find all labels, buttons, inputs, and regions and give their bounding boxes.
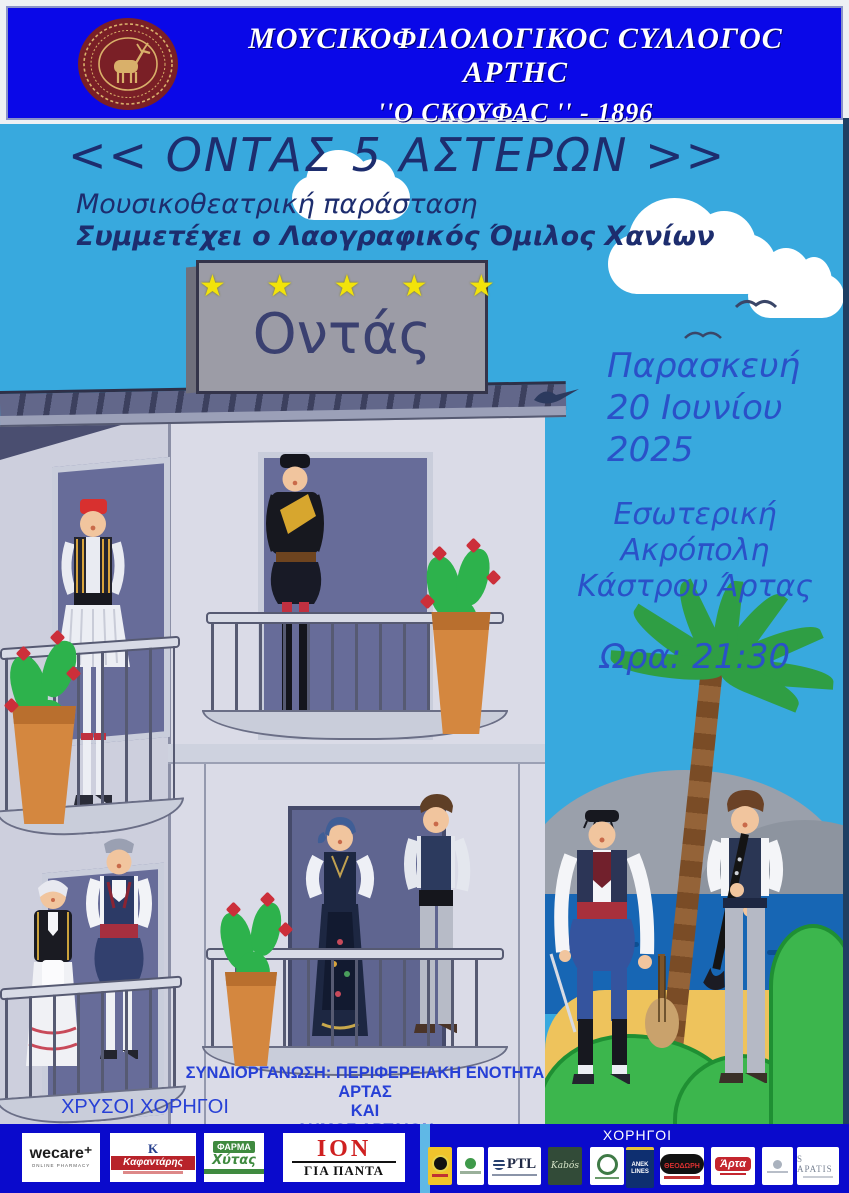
sponsor-microtext [664, 1176, 699, 1179]
sponsor-logo-5 [590, 1147, 624, 1185]
gold-sponsor-farma-xytas: ΦΑΡΜΑ Χύτας [204, 1133, 264, 1182]
sponsor-text: Καφαντάρης [111, 1156, 194, 1170]
event-venue-line1: Εσωτερική Ακρόπολη [545, 497, 845, 569]
sponsors-label: ΧΟΡΗΓΟΙ [430, 1127, 845, 1143]
sponsor-text: ΦΑΡΜΑ [213, 1141, 255, 1153]
event-day: Παρασκευή [607, 345, 845, 387]
sponsor-logo-2 [457, 1147, 484, 1185]
wreath-emblem-icon [597, 1154, 618, 1175]
sponsor-logo-arta: Άρτα [711, 1147, 755, 1185]
green-dot-icon [465, 1158, 476, 1169]
sponsor-microtext [720, 1173, 746, 1175]
event-details: Παρασκευή 20 Ιουνίου 2025 Εσωτερική Ακρό… [545, 345, 845, 677]
sponsor-logo-9 [762, 1147, 793, 1185]
musician-lyra-player [545, 804, 686, 1099]
sponsor-subtext: ΓΙΑ ΠΑΝΤΑ [304, 1164, 384, 1177]
sponsor-text: ΙΟΝ [317, 1138, 371, 1160]
seagull-icon [735, 296, 777, 310]
event-venue-line2: Κάστρου Άρτας [545, 569, 845, 605]
sponsor-logo-anek: ANEK LINES [626, 1147, 654, 1188]
sponsor-microtext [432, 1174, 449, 1177]
seagull-icon [684, 328, 722, 341]
sponsor-logo-kabos: Kabós [548, 1147, 582, 1185]
floor-ledge [168, 744, 545, 764]
sponsor-stripe [204, 1169, 264, 1174]
sponsor-text: PTL [507, 1157, 536, 1172]
sponsor-microtext [460, 1171, 480, 1174]
gold-sponsor-wecare: wecare⁺ ONLINE PHARMACY [22, 1133, 100, 1182]
sponsor-microtext [492, 1174, 537, 1176]
striped-globe-icon [493, 1158, 505, 1170]
show-participants: Συμμετέχει ο Λαογραφικός Όμιλος Χανίων [76, 221, 715, 252]
sponsor-text: ANEK LINES [626, 1162, 654, 1176]
sponsor-subtext: ONLINE PHARMACY [32, 1163, 91, 1169]
circle-emblem-icon [432, 1155, 449, 1172]
sponsor-microtext [123, 1171, 183, 1174]
gold-sponsors-label: ΧΡΥΣΟΙ ΧΟΡΗΓΟΙ [25, 1096, 265, 1119]
flower-emblem-icon [773, 1160, 782, 1169]
five-stars: ★ ★ ★ ★ ★ [199, 269, 485, 304]
sponsor-text: S APATIS [797, 1154, 839, 1174]
event-year: 2025 [607, 429, 845, 471]
club-founded: ''Ο CΚΟΥΦΑC '' - 1896 [198, 98, 833, 128]
sponsor-subtext: Χύτας [212, 1154, 256, 1168]
sponsor-microtext [803, 1176, 832, 1178]
event-poster: ΜΟΥCΙΚΟΦΙΛΟΛΟΓΙΚΟC CΥΛΛΟΓΟC ΑΡΤΗC ''Ο CΚ… [0, 0, 849, 1193]
header-text: ΜΟΥCΙΚΟΦΙΛΟΛΟΓΙΚΟC CΥΛΛΟΓΟC ΑΡΤΗC ''Ο CΚ… [198, 22, 833, 128]
club-seal-icon [76, 16, 180, 117]
right-edge-border [843, 118, 849, 1124]
sponsor-logo-1 [428, 1147, 452, 1185]
sponsor-text: ΘΕΟΔΩΡΗ [664, 1163, 700, 1170]
poster-header: ΜΟΥCΙΚΟΦΙΛΟΛΟΓΙΚΟC CΥΛΛΟΓΟC ΑΡΤΗC ''Ο CΚ… [6, 6, 843, 120]
sponsor-logo-ptl: PTL [488, 1147, 541, 1185]
hotel-name: Οντάς [199, 304, 485, 366]
sponsor-text: wecare⁺ [30, 1146, 93, 1162]
sponsor-logo-7: ΘΕΟΔΩΡΗ [660, 1147, 704, 1185]
sponsor-text: Kabós [551, 1161, 579, 1171]
club-name: ΜΟΥCΙΚΟΦΙΛΟΛΟΓΙΚΟC CΥΛΛΟΓΟC ΑΡΤΗC [198, 22, 833, 90]
sponsor-monogram: Κ [148, 1142, 158, 1155]
hotel-sign: ★ ★ ★ ★ ★ Οντάς [196, 260, 488, 394]
musician-clarinet-player [687, 788, 805, 1098]
sponsor-band: wecare⁺ ONLINE PHARMACY Κ Καφαντάρης ΦΑΡ… [0, 1124, 849, 1193]
event-time: Ωρα: 21:30 [545, 637, 845, 677]
gold-sponsor-kafantaris: Κ Καφαντάρης [110, 1133, 196, 1182]
event-date: 20 Ιουνίου [607, 387, 845, 429]
sponsor-microtext [595, 1177, 619, 1179]
sponsor-logo-10: S APATIS [797, 1147, 839, 1185]
sponsor-text: Άρτα [715, 1157, 751, 1171]
show-subtitle: Μουσικοθεατρική παράσταση [76, 189, 478, 220]
gold-sponsor-ion: ΙΟΝ ΓΙΑ ΠΑΝΤΑ [283, 1133, 405, 1182]
sponsor-microtext [767, 1171, 789, 1173]
show-title: << ΟΝΤΑΣ 5 ΑΣΤΕΡΩΝ >> [68, 128, 808, 182]
